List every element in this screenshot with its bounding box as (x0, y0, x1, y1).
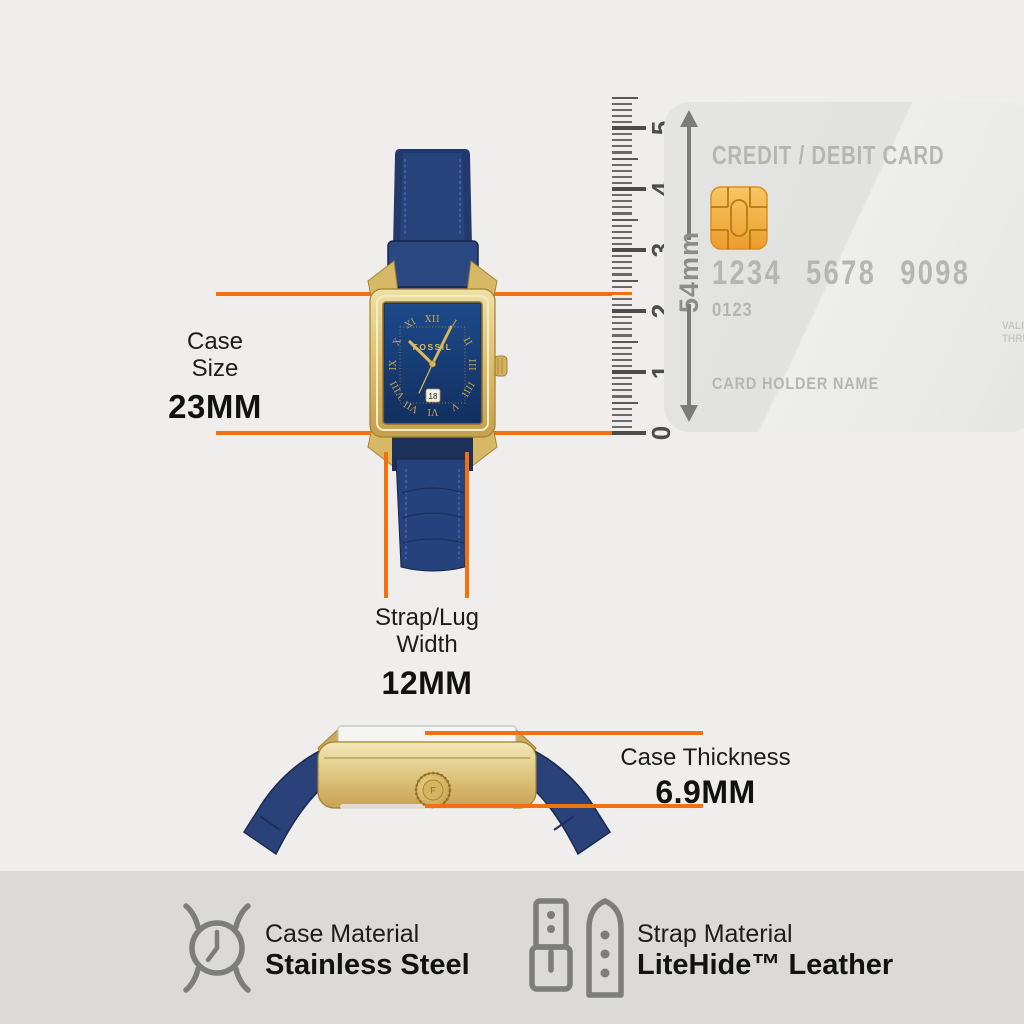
case-material-label: Case Material (265, 920, 470, 949)
ruler-tick (612, 176, 632, 178)
ruler-tick (612, 109, 632, 111)
case-size-value: 23MM (120, 388, 310, 426)
ruler-tick (612, 133, 632, 135)
ruler-tick (612, 103, 632, 105)
case-thickness-label: Case Thickness 6.9MM (598, 744, 813, 811)
date-window: 18 (426, 389, 440, 402)
watch-case-icon (183, 902, 253, 994)
arrow-up-icon (680, 110, 698, 127)
dial-numeral: VI (427, 406, 439, 416)
ruler-tick (612, 280, 638, 283)
ruler-tick (612, 389, 632, 391)
ruler-tick (612, 420, 632, 422)
ruler-tick (612, 231, 632, 233)
thickness-top-line (425, 731, 703, 735)
case-material-block: Case Material Stainless Steel (265, 920, 470, 982)
hands-cap (430, 361, 436, 367)
ruler-tick (612, 200, 632, 202)
strap-width-label: Strap/Lug Width 12MM (332, 604, 522, 702)
ruler-tick (612, 395, 632, 397)
bottom-strap (392, 437, 473, 571)
card-holder-name: CARD HOLDER NAME (712, 374, 879, 394)
ruler-tick (612, 206, 632, 208)
ruler-tick (612, 139, 632, 141)
ruler-tick (612, 145, 632, 147)
ruler-tick (612, 182, 632, 184)
ruler-tick (612, 304, 632, 306)
ruler-tick (612, 219, 638, 222)
ruler-tick (612, 359, 632, 361)
case-size-label-line2: Size (120, 355, 310, 382)
ruler-tick (612, 158, 638, 161)
top-strap (388, 149, 478, 293)
dial-numeral: III (466, 359, 476, 371)
side-crown: F (416, 773, 450, 807)
ruler-tick (612, 408, 632, 410)
ruler-tick (612, 267, 632, 269)
strap-width-value: 12MM (332, 664, 522, 702)
ruler-tick (612, 353, 632, 355)
ruler-tick (612, 121, 632, 123)
ruler-tick (612, 261, 632, 263)
ruler-tick (612, 237, 632, 239)
ruler-tick (612, 426, 632, 428)
ruler-tick (612, 212, 632, 214)
ruler-tick (612, 115, 632, 117)
card-number: 1234 5678 9098 (712, 254, 970, 293)
card-number-group3: 9098 (900, 254, 970, 293)
strap-keeper (388, 241, 478, 287)
watch-side-view: F (240, 712, 620, 862)
ruler-tick (612, 187, 646, 191)
card-number-group1: 1234 (712, 254, 782, 293)
ruler-tick (612, 431, 646, 435)
ruler-tick (612, 316, 632, 318)
ruler-tick (612, 164, 632, 166)
ruler-tick (612, 151, 632, 153)
ruler-tick (612, 248, 646, 252)
strap-material-block: Strap Material LiteHide™ Leather (637, 920, 893, 982)
ruler-tick (612, 273, 632, 275)
strap-width-label-line2: Width (332, 631, 522, 658)
card-number-group2: 5678 (806, 254, 876, 293)
crown-logo: F (430, 786, 436, 796)
strap-width-label-line1: Strap/Lug (332, 604, 522, 631)
ruler-tick (612, 225, 632, 227)
dial-numeral: IX (389, 359, 399, 370)
ruler-tick (612, 347, 632, 349)
arrow-down-icon (680, 405, 698, 422)
ruler-tick (612, 309, 646, 313)
watch-front-view: XIIIIIIIIIIIIVVIVIIVIIIIXXXI FOSSIL 18 (350, 143, 520, 605)
credit-card: CREDIT / DEBIT CARD 1234 5678 9098 0123 … (664, 102, 1024, 432)
strap-material-value: LiteHide™ Leather (637, 949, 893, 982)
ruler-tick (612, 334, 632, 336)
watch-crown (494, 356, 507, 376)
ruler-tick (612, 322, 632, 324)
ruler-tick (612, 328, 632, 330)
card-valid-line1: VALID (1002, 320, 1024, 333)
ruler-tick (612, 370, 646, 374)
ruler-tick (612, 286, 632, 288)
ruler-tick (612, 414, 632, 416)
date-value: 18 (429, 392, 438, 401)
ruler-tick (612, 377, 632, 379)
strap-width-right-line (465, 452, 469, 598)
arrow-shaft-bottom (687, 304, 691, 406)
ruler-tick (612, 341, 638, 344)
ruler-tick (612, 255, 632, 257)
case-thickness-label-text: Case Thickness (598, 744, 813, 771)
ruler-tick (612, 383, 632, 385)
strap-width-left-line (384, 452, 388, 598)
watch-dial: XIIIIIIIIIIIIVVIVIIVIIIIXXXI FOSSIL 18 (385, 304, 480, 422)
strap-material-icon (529, 898, 627, 998)
case-size-label-line1: Case (120, 328, 310, 355)
case-material-value: Stainless Steel (265, 949, 470, 982)
ruler-tick (612, 298, 632, 300)
card-title: CREDIT / DEBIT CARD (712, 140, 944, 171)
card-chip-icon (710, 186, 768, 250)
ruler-tick (612, 365, 632, 367)
dial-numeral: XII (425, 315, 440, 325)
card-sub-number: 0123 (712, 300, 753, 322)
materials-footer: Case Material Stainless Steel Strap Mate… (0, 871, 1024, 1024)
case-size-label: Case Size 23MM (120, 328, 310, 426)
card-valid-line2: THRU (1002, 333, 1024, 346)
strap-material-label: Strap Material (637, 920, 893, 949)
ruler-tick (612, 243, 632, 245)
ruler-tick (612, 97, 638, 100)
ruler-tick (612, 402, 638, 405)
ruler-tick (612, 194, 632, 196)
ruler-tick (612, 126, 646, 130)
case-thickness-value: 6.9MM (598, 773, 813, 811)
infographic-canvas: { "accent_color": "#f2700f", "case_size"… (0, 0, 1024, 1024)
card-valid-thru: VALID THRU (1002, 320, 1024, 346)
ruler-tick (612, 292, 632, 296)
ruler-tick (612, 170, 632, 172)
